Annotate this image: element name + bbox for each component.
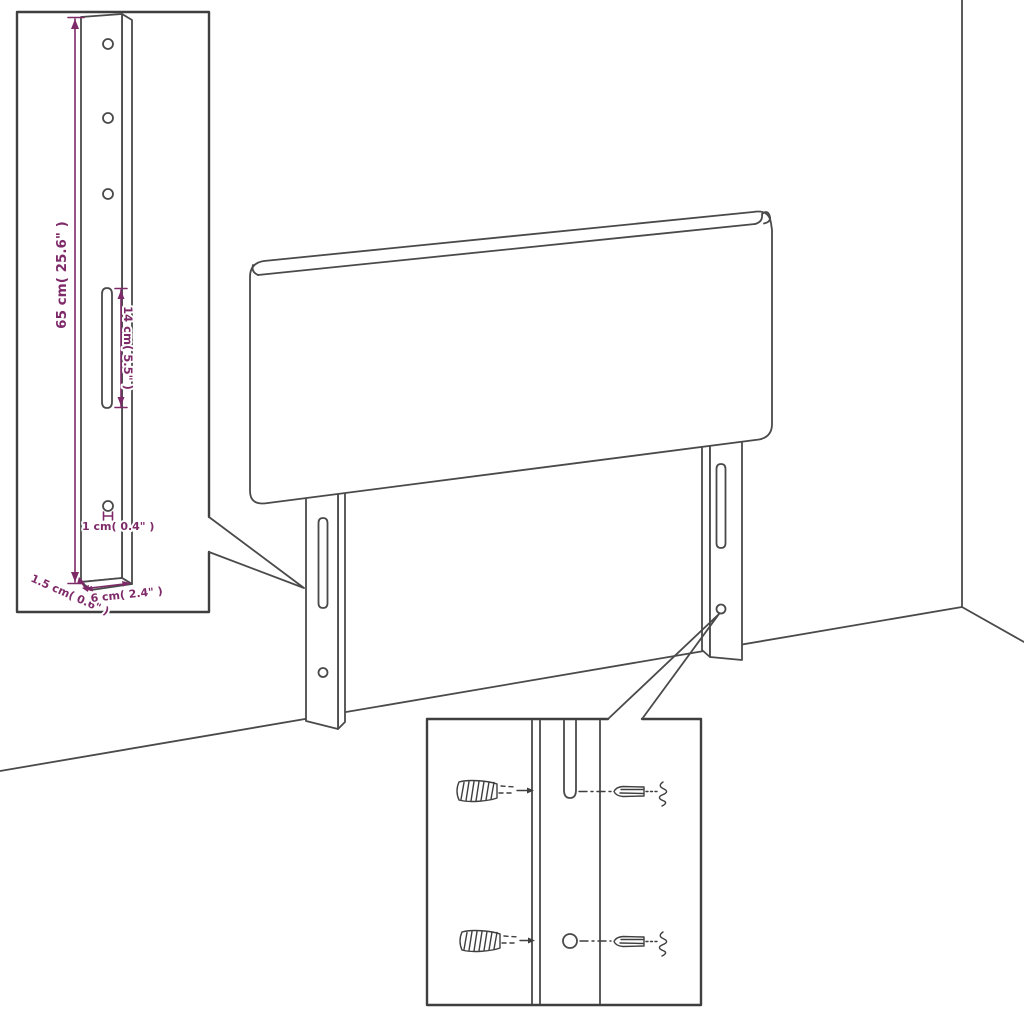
wall-plug-icon [460, 931, 500, 952]
leg-front-face [306, 470, 338, 729]
screw-icon [614, 782, 667, 806]
panel-face [250, 211, 772, 503]
dimension-height: 65 cm( 25.6" ) [54, 18, 84, 584]
dimension-height-label: 65 cm( 25.6" ) [54, 221, 70, 329]
left-mounting-leg [306, 470, 345, 729]
callout-tail [608, 614, 719, 719]
product-dimension-diagram: 65 cm( 25.6" ) 14 cm( 5.5" ) 1 cm( 0.4" … [0, 0, 1024, 1024]
headboard-panel [250, 211, 772, 503]
dimension-slot-label: 14 cm( 5.5" ) [121, 306, 135, 390]
leg-strip-lines [532, 721, 600, 1004]
dimension-hole-label: 1 cm( 0.4" ) [82, 520, 154, 533]
floor-line-left [0, 607, 962, 771]
leg-closeup [532, 721, 600, 1004]
callout-tail [209, 517, 304, 588]
plug-leader-line [499, 786, 534, 794]
diagram-canvas: 65 cm( 25.6" ) 14 cm( 5.5" ) 1 cm( 0.4" … [0, 0, 1024, 1024]
screw-icon [614, 932, 667, 956]
wall-plug-icon [457, 781, 497, 802]
bracket-drawing [81, 14, 132, 590]
closeup-hole [563, 934, 577, 948]
plug-leader-line [502, 936, 535, 944]
floor-line-right [962, 607, 1024, 642]
leg-side-face [338, 470, 345, 729]
closeup-slot [564, 721, 576, 799]
